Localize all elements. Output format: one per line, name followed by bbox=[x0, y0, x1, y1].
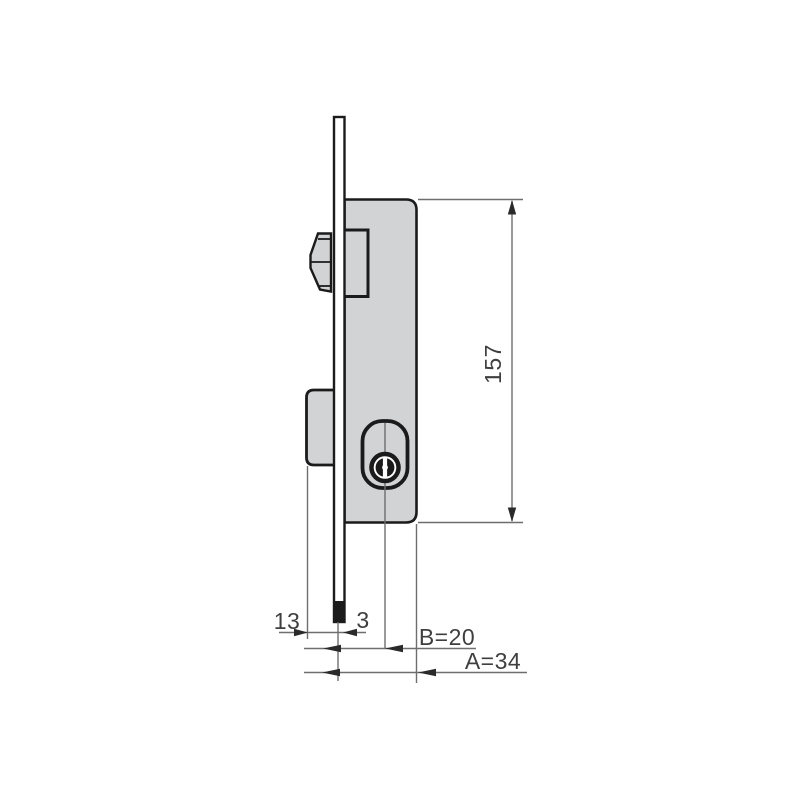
cylinder-keyway bbox=[369, 452, 401, 484]
technical-drawing-canvas: 157 13 3 B=20 A=34 bbox=[0, 0, 800, 800]
dimension-backset: B=20 bbox=[304, 624, 476, 652]
dimension-bolt-and-plate: 13 3 bbox=[274, 607, 370, 636]
faceplate bbox=[334, 117, 345, 622]
latch-bolt-tail bbox=[344, 230, 369, 297]
label-faceplate-thickness: 3 bbox=[356, 607, 369, 633]
dimension-case-height: 157 bbox=[418, 200, 523, 523]
label-case-height: 157 bbox=[480, 344, 506, 384]
lock-diagram: 157 13 3 B=20 A=34 bbox=[0, 0, 800, 800]
deadbolt bbox=[307, 390, 337, 465]
label-bolt-projection: 13 bbox=[274, 608, 301, 634]
label-case-depth: A=34 bbox=[465, 648, 521, 674]
latch-bolt-head bbox=[311, 234, 332, 292]
label-backset: B=20 bbox=[419, 624, 475, 650]
